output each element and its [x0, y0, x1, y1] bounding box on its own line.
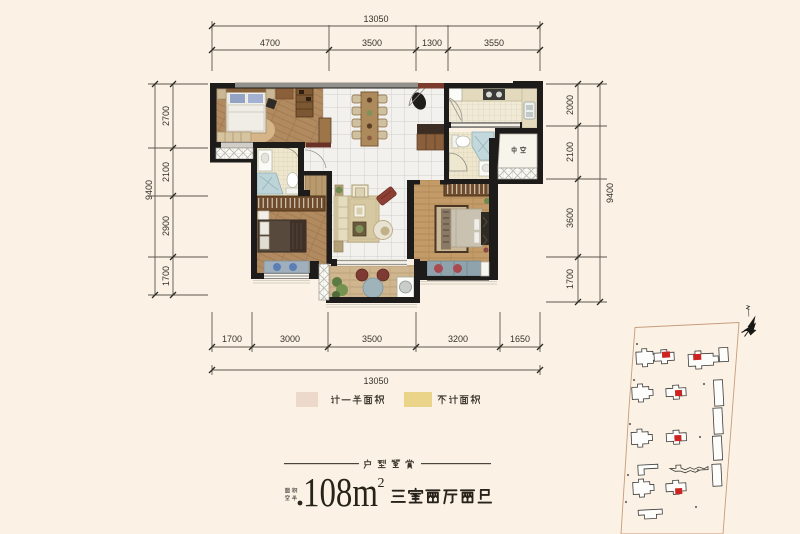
svg-text:2100: 2100	[161, 162, 171, 182]
svg-text:1300: 1300	[422, 38, 442, 48]
svg-text:2700: 2700	[161, 106, 171, 126]
svg-text:9400: 9400	[605, 183, 615, 203]
svg-text:2: 2	[378, 476, 385, 491]
svg-text:13050: 13050	[363, 376, 388, 386]
svg-text:13050: 13050	[363, 14, 388, 24]
svg-text:3200: 3200	[448, 334, 468, 344]
svg-text:3500: 3500	[362, 334, 382, 344]
svg-text:3600: 3600	[565, 208, 575, 228]
svg-text:1650: 1650	[510, 334, 530, 344]
svg-text:2000: 2000	[565, 95, 575, 115]
svg-text:108m: 108m	[303, 469, 378, 515]
svg-text:3000: 3000	[280, 334, 300, 344]
svg-text:1700: 1700	[565, 269, 575, 289]
svg-text:3550: 3550	[484, 38, 504, 48]
svg-text:3500: 3500	[362, 38, 382, 48]
svg-text:2900: 2900	[161, 216, 171, 236]
svg-text:1700: 1700	[161, 266, 171, 286]
svg-text:4700: 4700	[260, 38, 280, 48]
svg-text:1700: 1700	[222, 334, 242, 344]
svg-text:2100: 2100	[565, 142, 575, 162]
svg-text:9400: 9400	[144, 180, 154, 200]
